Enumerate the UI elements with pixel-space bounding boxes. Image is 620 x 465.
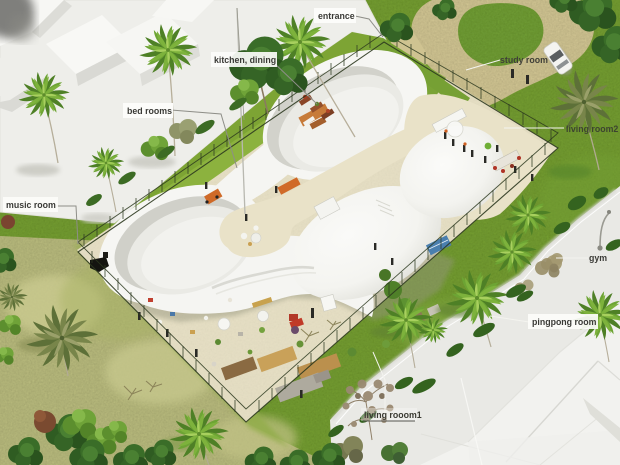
svg-text:study room: study room [500,55,548,65]
svg-text:living rooom1: living rooom1 [364,410,422,420]
svg-text:bed rooms: bed rooms [127,106,172,116]
svg-text:kitchen, dining: kitchen, dining [214,55,276,65]
svg-text:music room: music room [6,200,56,210]
svg-text:gym: gym [589,253,607,263]
svg-text:entrance: entrance [318,11,355,21]
svg-text:pingpong room: pingpong room [532,317,597,327]
svg-text:living room2: living room2 [566,124,618,134]
